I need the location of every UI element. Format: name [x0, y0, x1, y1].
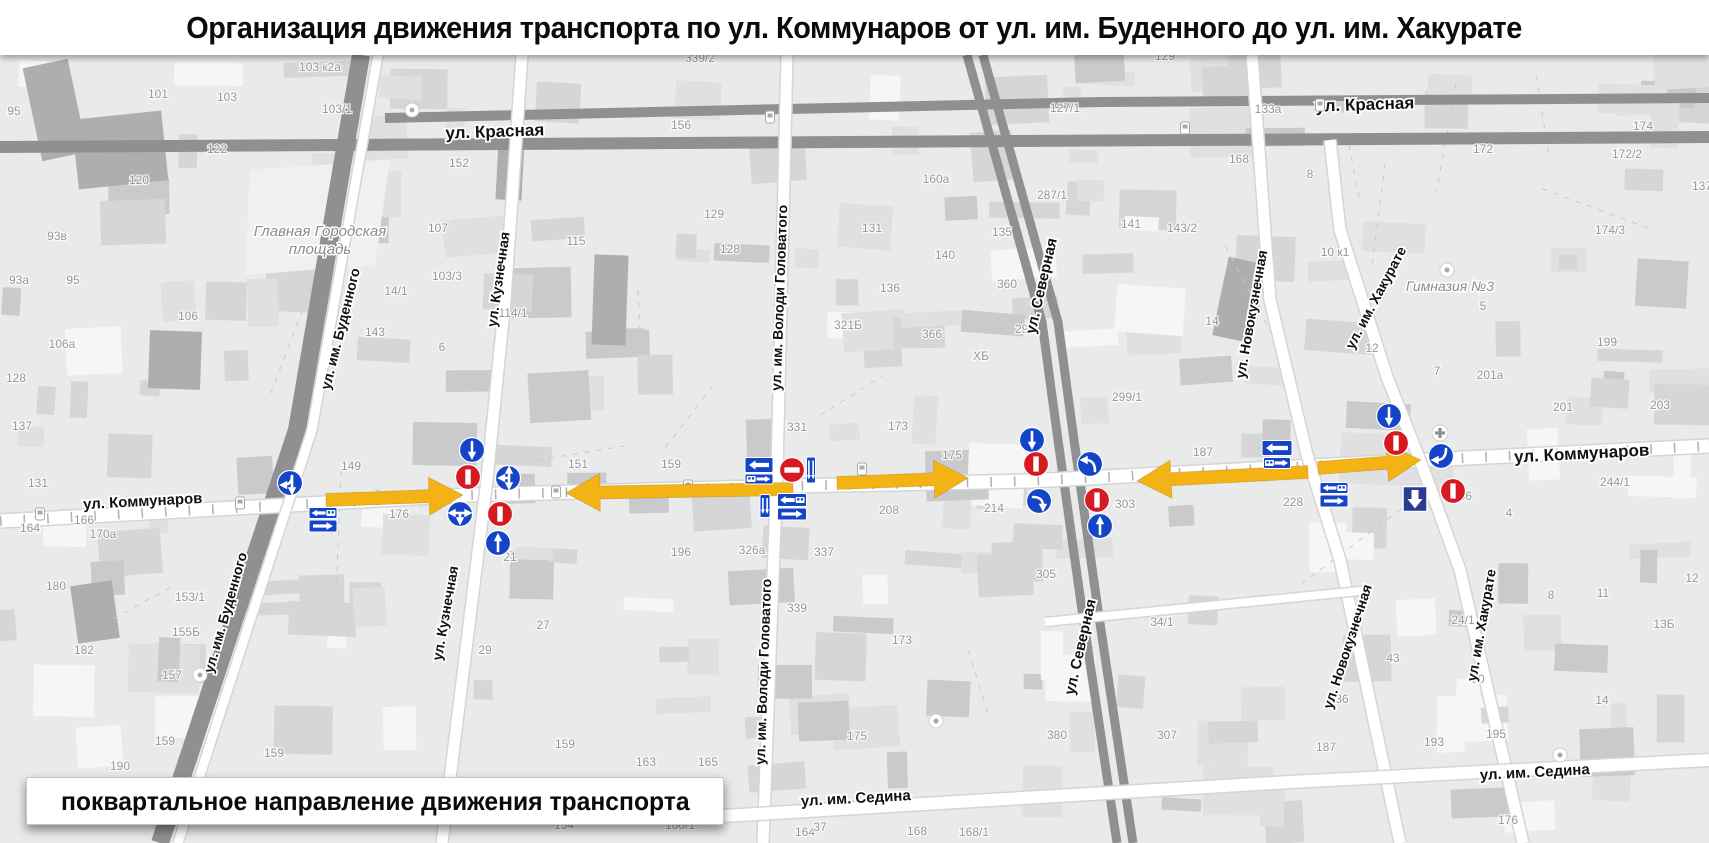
- building-number: 122: [207, 142, 227, 156]
- building-number: 339: [787, 601, 807, 615]
- sign-lane-direction: [778, 494, 807, 507]
- building-number: 174: [1633, 119, 1653, 133]
- medical-cross-icon: [1435, 431, 1445, 434]
- building: [357, 337, 411, 363]
- sign-mandatory-direction: [1020, 428, 1045, 453]
- building: [1498, 563, 1528, 604]
- building-number: 137: [12, 419, 32, 433]
- building-number: 93в: [47, 229, 67, 243]
- building: [1260, 785, 1285, 827]
- street-label: ул. Красная: [1315, 93, 1414, 115]
- building: [352, 587, 387, 628]
- sign-no-entry: [488, 502, 513, 527]
- sign-mandatory-direction: [1429, 444, 1454, 469]
- traffic-scheme-poster: 95101103103 к2а103/112212093в93а95106106…: [0, 0, 1709, 843]
- building-number: 159: [264, 746, 284, 760]
- building-number: 11: [1597, 586, 1610, 600]
- building: [656, 696, 712, 714]
- building-number: 27: [536, 618, 550, 632]
- building-number: 201: [1553, 400, 1573, 414]
- building-number: 331: [787, 420, 807, 434]
- building: [1657, 695, 1685, 743]
- building: [1077, 179, 1105, 201]
- building-number: 203: [1650, 398, 1670, 412]
- building-number: 101: [148, 87, 168, 101]
- sign-no-entry: [1384, 431, 1409, 456]
- building: [288, 601, 357, 638]
- page-title: Организация движения транспорта по ул. К…: [187, 10, 1523, 46]
- building-number: 10 к1: [1321, 245, 1350, 259]
- building: [1069, 149, 1098, 163]
- building-number: 187: [1316, 740, 1336, 754]
- poi-dot-icon: [1445, 268, 1450, 273]
- building: [107, 433, 153, 478]
- legend-flow-arrow-icon: [39, 783, 41, 819]
- sign-mandatory-direction: [1078, 452, 1103, 477]
- building: [1168, 505, 1194, 527]
- sign-one-way: [1403, 487, 1427, 512]
- building-number: 95: [7, 104, 21, 118]
- place-label: Гимназия №3: [1406, 278, 1494, 294]
- building-number: 326а: [739, 543, 766, 557]
- legend: поквартальное направление движения транс…: [26, 777, 724, 825]
- bus-icon: [1270, 461, 1272, 463]
- building-number: 127/1: [1050, 101, 1080, 115]
- building: [1396, 598, 1437, 636]
- building: [527, 370, 591, 423]
- sign-lane-direction: [807, 457, 816, 483]
- bus-icon: [801, 498, 803, 500]
- building-number: 214: [984, 501, 1004, 515]
- building-number: 14: [1205, 314, 1219, 328]
- building-number: 305: [1036, 567, 1056, 581]
- building: [1179, 356, 1233, 386]
- sign-no-entry: [1085, 488, 1110, 513]
- building-number: 168: [907, 824, 927, 838]
- building: [1208, 720, 1258, 743]
- building: [1069, 711, 1095, 752]
- building-number: 8: [1307, 167, 1314, 181]
- building: [869, 75, 901, 121]
- building: [446, 370, 497, 392]
- building-number: 106: [178, 309, 198, 323]
- building-number: 6: [439, 340, 446, 354]
- building: [1041, 631, 1063, 680]
- bus-icon: [326, 510, 335, 516]
- building-number: 174/3: [1595, 223, 1625, 237]
- building: [977, 552, 1034, 598]
- building-number: 164: [795, 825, 815, 839]
- building-number: 366: [922, 327, 942, 341]
- building: [1624, 168, 1663, 191]
- building-dark: [148, 330, 202, 390]
- building-number: 103/3: [432, 269, 462, 283]
- building-number: 321Б: [834, 318, 862, 332]
- building-number: 168/1: [959, 825, 989, 839]
- bus-icon: [1266, 461, 1268, 463]
- building-number: 172/2: [1612, 147, 1642, 161]
- building-number: 190: [110, 759, 130, 773]
- legend-label: поквартальное направление движения транс…: [61, 786, 690, 817]
- building: [675, 233, 697, 258]
- building: [1653, 49, 1709, 90]
- building-number: 173: [892, 633, 912, 647]
- building-number: 175: [847, 729, 867, 743]
- building-number: 173: [888, 419, 908, 433]
- building: [1161, 797, 1201, 812]
- no-entry-bar: [1033, 456, 1038, 471]
- building-number: 168: [1229, 152, 1249, 166]
- no-entry-bar: [497, 506, 502, 521]
- building-number: 299/1: [1112, 390, 1142, 404]
- building: [1635, 258, 1689, 309]
- building-number: 13Б: [1653, 617, 1674, 631]
- building: [1495, 321, 1520, 357]
- sign-lane-direction: [760, 495, 770, 518]
- building-number: 24/1: [1451, 613, 1475, 627]
- sign-no-entry: [1024, 452, 1049, 477]
- bus-icon: [796, 497, 805, 503]
- building: [0, 609, 17, 642]
- bus-stop-icon: [1318, 102, 1323, 106]
- building-number: 175: [942, 448, 962, 462]
- building: [794, 248, 819, 268]
- sign-lane-direction: [1262, 441, 1292, 456]
- building: [70, 381, 89, 418]
- building: [33, 665, 94, 718]
- sign-lane-direction: [1320, 495, 1348, 507]
- building-number: 337: [814, 545, 834, 559]
- poi-dot-icon: [198, 673, 203, 678]
- building: [829, 423, 860, 441]
- poi-dot-icon: [410, 108, 415, 113]
- no-entry-bar: [1450, 483, 1455, 498]
- building: [1082, 253, 1133, 274]
- sign-lane-direction: [1320, 483, 1348, 494]
- building-number: 131: [862, 221, 882, 235]
- building-number: 114/1: [498, 306, 527, 320]
- building: [36, 386, 56, 415]
- building: [1024, 674, 1043, 690]
- bus-stop-icon: [238, 500, 243, 504]
- building-number: 170а: [90, 527, 117, 541]
- building-number: 8: [1548, 588, 1555, 602]
- sign-mandatory-direction: [1027, 489, 1052, 514]
- no-entry-bar: [784, 467, 799, 472]
- sign-mandatory-direction: [460, 438, 485, 463]
- building: [659, 646, 689, 662]
- sign-lane-direction: [745, 474, 773, 484]
- building-number: 152: [449, 156, 469, 170]
- building-number: 29: [478, 643, 492, 657]
- bus-stop-icon: [38, 511, 43, 515]
- building: [814, 632, 867, 681]
- sign-face: [1027, 489, 1052, 514]
- sign-lane-direction: [745, 458, 773, 473]
- sign-lane-direction: [1264, 458, 1291, 469]
- sign-lane-direction: [778, 508, 807, 520]
- building-number: 176: [1498, 813, 1518, 827]
- building: [224, 350, 249, 381]
- building: [516, 547, 553, 560]
- bus-icon: [1339, 486, 1341, 488]
- building-number: 187: [1193, 445, 1213, 459]
- building-number: 199: [1597, 335, 1617, 349]
- building-number: 163: [636, 755, 656, 769]
- building: [474, 680, 493, 700]
- building: [911, 395, 938, 445]
- building-number: 140: [935, 248, 955, 262]
- no-entry-bar: [1393, 435, 1398, 450]
- bus-stop-icon: [768, 114, 773, 118]
- bus-stop-icon: [554, 489, 559, 493]
- building-number: 172: [1473, 142, 1493, 156]
- building-number: 153/1: [175, 590, 205, 604]
- sign-face: [760, 495, 770, 518]
- city-map: 95101103103 к2а103/112212093в93а95106106…: [0, 0, 1709, 843]
- building: [833, 616, 894, 634]
- building-number: 159: [155, 734, 175, 748]
- building: [1629, 542, 1692, 560]
- building: [1597, 349, 1663, 363]
- building-number: 287/1: [1037, 188, 1067, 202]
- sign-no-entry: [780, 458, 805, 483]
- building: [862, 575, 888, 605]
- building-number: 157: [162, 668, 182, 682]
- building-number: 5: [1480, 299, 1487, 313]
- building-number: 141: [1121, 217, 1141, 231]
- bus-icon: [797, 498, 799, 500]
- building: [247, 278, 279, 326]
- building-number: 136: [880, 281, 900, 295]
- building-number: 120: [129, 173, 149, 187]
- building: [623, 597, 673, 612]
- sign-mandatory-direction: [496, 466, 521, 491]
- building-number: 12: [1685, 571, 1699, 585]
- building: [174, 63, 243, 86]
- street-label: ул. Красная: [445, 120, 544, 142]
- building: [637, 355, 672, 395]
- building-number: 103 к2а: [299, 60, 341, 74]
- building: [1241, 687, 1286, 721]
- title-bar: Организация движения транспорта по ул. К…: [0, 0, 1709, 55]
- building-number: 137: [1692, 179, 1709, 193]
- bus-icon: [752, 477, 754, 479]
- building: [205, 281, 247, 321]
- bus-icon: [748, 477, 750, 479]
- poi-dot-icon: [934, 719, 939, 724]
- building-number: 160а: [923, 172, 950, 186]
- building: [100, 199, 166, 246]
- building-number: 143: [365, 325, 385, 339]
- bus-icon: [1343, 486, 1345, 488]
- building: [836, 279, 859, 305]
- building-number: 159: [555, 737, 575, 751]
- building-dark: [591, 254, 628, 345]
- building-number: 164: [20, 521, 40, 535]
- building: [1074, 52, 1125, 83]
- sign-lane-direction: [309, 520, 337, 532]
- building-number: 195: [1486, 727, 1506, 741]
- no-entry-bar: [465, 469, 470, 484]
- building-number: 201а: [1477, 368, 1504, 382]
- building-number: 34/1: [1150, 615, 1174, 629]
- building-number: 156: [671, 118, 691, 132]
- building-number: 155Б: [172, 625, 200, 639]
- building-number: 380: [1047, 728, 1067, 742]
- building-number: 14: [1595, 693, 1609, 707]
- building-number: 180: [46, 579, 66, 593]
- building-number: 208: [879, 503, 899, 517]
- building-dark: [70, 580, 120, 643]
- building: [1640, 550, 1657, 583]
- sign-face: [807, 457, 816, 483]
- sign-no-entry: [1441, 479, 1466, 504]
- building-number: 133а: [1255, 102, 1282, 116]
- building-number: 95: [66, 273, 80, 287]
- building: [1554, 643, 1608, 673]
- building-number: 165: [698, 755, 718, 769]
- building-number: 151: [568, 457, 588, 471]
- building-number: 159: [661, 457, 681, 471]
- building-number: 107: [428, 221, 448, 235]
- bus-stop-icon: [860, 466, 865, 470]
- building: [1307, 260, 1348, 282]
- building: [1590, 378, 1630, 409]
- bus-stop-icon: [1183, 125, 1188, 129]
- building: [1080, 396, 1109, 424]
- building-number: 196: [671, 545, 691, 559]
- building-number: 103/1: [322, 102, 352, 116]
- building-number: 193: [1424, 735, 1444, 749]
- building: [1, 287, 21, 316]
- building-number: 128: [6, 371, 26, 385]
- building-number: 166: [74, 513, 94, 527]
- sign-mandatory-direction: [1377, 404, 1402, 429]
- building-number: 129: [704, 207, 724, 221]
- building-number: 103: [217, 90, 237, 104]
- sign-face: [1429, 444, 1454, 469]
- building: [1559, 255, 1577, 270]
- sign-lane-direction: [309, 508, 337, 519]
- building-number: 131: [28, 476, 48, 490]
- building: [379, 75, 422, 100]
- sign-face: [1078, 452, 1103, 477]
- building-number: 12: [1365, 341, 1379, 355]
- building: [747, 761, 806, 793]
- building-number: 14/1: [384, 284, 408, 298]
- sign-mandatory-direction: [486, 531, 511, 556]
- building: [1114, 284, 1186, 336]
- bus-icon: [332, 511, 334, 513]
- building-number: 360: [997, 277, 1017, 291]
- bus-icon: [747, 476, 756, 482]
- building-number: 93а: [9, 273, 29, 287]
- building: [944, 196, 978, 221]
- building-number: 4: [1506, 506, 1513, 520]
- bus-icon: [1337, 485, 1346, 491]
- poi-dot-icon: [1558, 753, 1563, 758]
- building-number: 143/2: [1167, 221, 1197, 235]
- sign-no-entry: [456, 465, 481, 490]
- building-number: 37: [813, 820, 827, 834]
- building-number: 303: [1115, 497, 1135, 511]
- building-number: 182: [74, 643, 94, 657]
- building-number: 43: [1386, 651, 1400, 665]
- building: [1673, 448, 1691, 498]
- building-number: 244/1: [1600, 475, 1630, 489]
- building-number: 149: [341, 459, 361, 473]
- building: [687, 639, 719, 676]
- building-number: 176: [389, 507, 409, 521]
- building: [383, 706, 417, 750]
- sign-mandatory-direction: [448, 502, 473, 527]
- building-number: 228: [1283, 495, 1303, 509]
- building: [1116, 674, 1145, 708]
- building-number: 307: [1157, 728, 1177, 742]
- building-number: 115: [566, 234, 585, 248]
- building: [798, 701, 850, 742]
- sign-mandatory-direction: [278, 471, 303, 496]
- no-entry-bar: [1094, 492, 1099, 507]
- building-number: ХБ: [973, 349, 989, 363]
- bus-icon: [1265, 460, 1274, 466]
- building-number: 135: [992, 225, 1012, 239]
- building: [887, 752, 908, 789]
- sign-mandatory-direction: [1088, 514, 1113, 539]
- building-number: 128: [720, 242, 740, 256]
- bus-icon: [328, 511, 330, 513]
- building-number: 7: [1434, 364, 1441, 378]
- building-number: 106а: [49, 337, 76, 351]
- building: [926, 680, 971, 718]
